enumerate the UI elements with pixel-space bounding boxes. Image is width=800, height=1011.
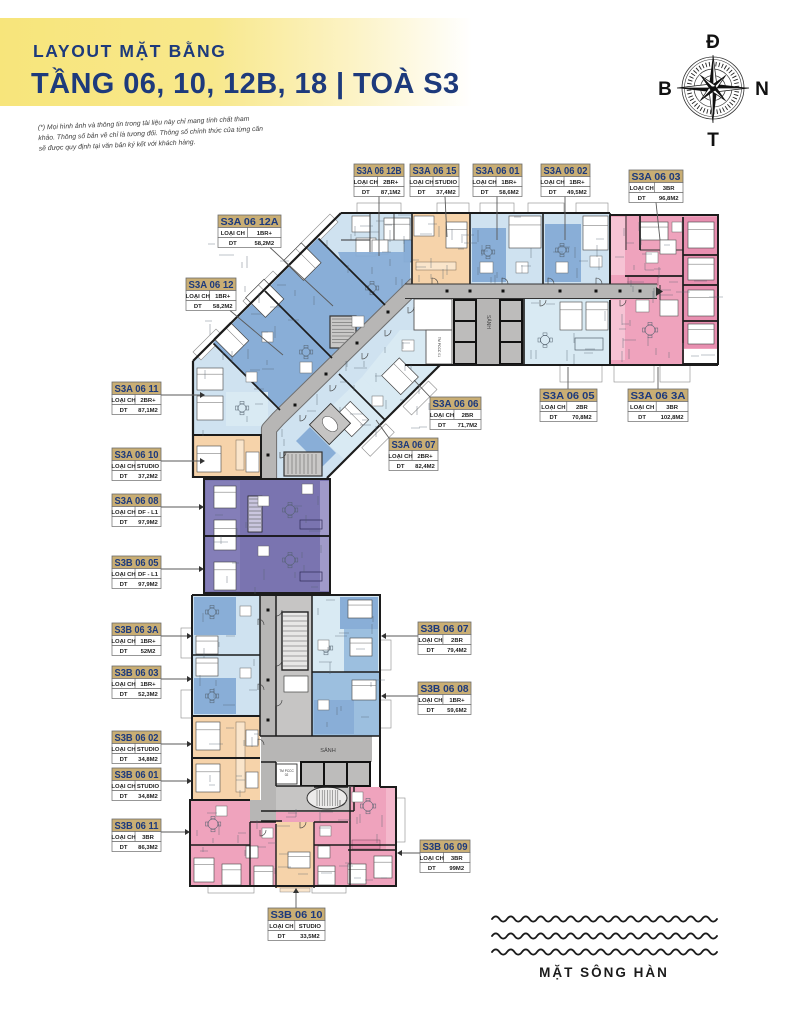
- svg-text:2BR+: 2BR+: [383, 180, 399, 186]
- svg-text:1BR+: 1BR+: [140, 682, 156, 688]
- svg-text:LOẠI CH: LOẠI CH: [409, 180, 433, 186]
- svg-text:DF - L1: DF - L1: [138, 510, 159, 516]
- svg-text:S3B 06 3A: S3B 06 3A: [115, 625, 160, 636]
- svg-text:1BR+: 1BR+: [501, 180, 517, 186]
- svg-text:S3B 06 07: S3B 06 07: [421, 624, 469, 635]
- svg-text:LOẠI CH: LOẠI CH: [111, 398, 135, 404]
- svg-text:3BR: 3BR: [451, 856, 464, 862]
- svg-text:33,5M2: 33,5M2: [300, 934, 320, 940]
- svg-text:STUDIO: STUDIO: [299, 924, 322, 930]
- svg-text:DT: DT: [194, 304, 202, 310]
- svg-text:S3B 06 03: S3B 06 03: [115, 668, 159, 679]
- svg-text:S3B 06 08: S3B 06 08: [421, 684, 469, 695]
- svg-text:34,8M2: 34,8M2: [138, 794, 158, 800]
- svg-text:LOẠI CH: LOẠI CH: [540, 180, 564, 186]
- svg-text:79,4M2: 79,4M2: [447, 648, 467, 654]
- svg-text:DT: DT: [438, 423, 446, 429]
- svg-text:DT: DT: [120, 649, 128, 655]
- svg-text:LOẠI CH: LOẠI CH: [472, 180, 496, 186]
- svg-text:S3A 06 12A: S3A 06 12A: [221, 217, 280, 228]
- svg-text:TM PCCC 01: TM PCCC 01: [437, 337, 441, 357]
- svg-text:102,8M2: 102,8M2: [661, 415, 685, 421]
- svg-text:2BR+: 2BR+: [140, 398, 156, 404]
- svg-text:LOẠI CH: LOẠI CH: [221, 231, 245, 237]
- svg-text:99M2: 99M2: [449, 866, 464, 872]
- svg-text:SẢNH: SẢNH: [320, 747, 336, 754]
- svg-text:B: B: [658, 79, 672, 100]
- svg-text:LOẠI CH: LOẠI CH: [388, 454, 412, 460]
- svg-text:3BR: 3BR: [666, 405, 679, 411]
- svg-text:3BR: 3BR: [663, 186, 676, 192]
- svg-text:DT: DT: [428, 866, 436, 872]
- svg-text:DT: DT: [397, 464, 405, 470]
- svg-text:S3B 06 10: S3B 06 10: [271, 910, 323, 921]
- svg-text:SẢNH: SẢNH: [485, 315, 492, 329]
- svg-text:Đ: Đ: [706, 32, 720, 53]
- svg-text:LOẠI CH: LOẠI CH: [630, 405, 654, 411]
- svg-text:S3B 06 02: S3B 06 02: [115, 733, 159, 744]
- svg-text:DT: DT: [120, 474, 128, 480]
- svg-text:MẶT SÔNG HÀN: MẶT SÔNG HÀN: [539, 965, 669, 980]
- svg-text:97,9M2: 97,9M2: [138, 582, 158, 588]
- svg-text:S3A 06 05: S3A 06 05: [543, 391, 595, 402]
- svg-text:LOẠI CH: LOẠI CH: [354, 180, 378, 186]
- svg-text:STUDIO: STUDIO: [137, 784, 160, 790]
- svg-text:96,8M2: 96,8M2: [659, 196, 679, 202]
- svg-text:N: N: [755, 79, 769, 100]
- svg-text:DT: DT: [120, 757, 128, 763]
- svg-text:DT: DT: [120, 582, 128, 588]
- svg-text:LOẠI CH: LOẠI CH: [111, 682, 135, 688]
- svg-text:DT: DT: [120, 408, 128, 414]
- svg-text:LOẠI CH: LOẠI CH: [111, 639, 135, 645]
- svg-text:1BR+: 1BR+: [215, 294, 231, 300]
- svg-text:S3A 06 10: S3A 06 10: [115, 450, 159, 461]
- svg-text:DT: DT: [120, 794, 128, 800]
- svg-text:S3A 06 07: S3A 06 07: [392, 440, 436, 451]
- svg-text:DT: DT: [362, 190, 370, 196]
- svg-text:LOẠI CH: LOẠI CH: [111, 835, 135, 841]
- svg-text:DT: DT: [481, 190, 489, 196]
- svg-text:DT: DT: [229, 241, 237, 247]
- svg-text:LOẠI CH: LOẠI CH: [111, 747, 135, 753]
- svg-text:LOẠI CH: LOẠI CH: [111, 784, 135, 790]
- svg-text:DT: DT: [638, 196, 646, 202]
- svg-text:STUDIO: STUDIO: [435, 180, 458, 186]
- svg-text:70,8M2: 70,8M2: [572, 415, 592, 421]
- svg-text:97,9M2: 97,9M2: [138, 520, 158, 526]
- svg-text:DT: DT: [549, 190, 557, 196]
- svg-text:S3A 06 02: S3A 06 02: [544, 166, 588, 177]
- svg-text:1BR+: 1BR+: [257, 231, 273, 237]
- svg-text:LOẠI CH: LOẠI CH: [111, 572, 135, 578]
- svg-text:52,3M2: 52,3M2: [138, 692, 158, 698]
- svg-text:S3B 06 11: S3B 06 11: [115, 821, 159, 832]
- svg-text:86,3M2: 86,3M2: [138, 845, 158, 851]
- svg-text:LOẠI CH: LOẠI CH: [541, 405, 565, 411]
- svg-text:T: T: [707, 130, 719, 151]
- svg-text:49,5M2: 49,5M2: [567, 190, 587, 196]
- svg-text:S3B 06 01: S3B 06 01: [115, 770, 159, 781]
- svg-text:58,2M2: 58,2M2: [254, 241, 274, 247]
- svg-text:DF - L1: DF - L1: [138, 572, 159, 578]
- svg-text:58,6M2: 58,6M2: [499, 190, 519, 196]
- svg-text:S3A 06 12B: S3A 06 12B: [357, 166, 402, 177]
- svg-text:02: 02: [285, 773, 289, 777]
- svg-text:1BR+: 1BR+: [449, 698, 465, 704]
- svg-text:58,2M2: 58,2M2: [213, 304, 233, 310]
- svg-text:LOẠI CH: LOẠI CH: [630, 186, 654, 192]
- svg-text:TẦNG 06, 10, 12B, 18 | TOÀ S3: TẦNG 06, 10, 12B, 18 | TOÀ S3: [31, 66, 460, 100]
- svg-text:DT: DT: [638, 415, 646, 421]
- svg-text:52M2: 52M2: [141, 649, 156, 655]
- svg-text:LOẠI CH: LOẠI CH: [430, 413, 454, 419]
- svg-text:LOẠI CH: LOẠI CH: [418, 698, 442, 704]
- svg-text:87,1M2: 87,1M2: [381, 190, 401, 196]
- svg-text:DT: DT: [120, 692, 128, 698]
- svg-text:3BR: 3BR: [142, 835, 155, 841]
- svg-text:DT: DT: [277, 934, 285, 940]
- svg-text:DT: DT: [549, 415, 557, 421]
- svg-text:S3A 06 3A: S3A 06 3A: [631, 391, 687, 402]
- svg-text:37,4M2: 37,4M2: [436, 190, 456, 196]
- svg-text:DT: DT: [427, 648, 435, 654]
- svg-text:LOẠI CH: LOẠI CH: [269, 924, 293, 930]
- svg-text:S3A 06 06: S3A 06 06: [433, 399, 479, 410]
- svg-text:S3A 06 08: S3A 06 08: [115, 496, 159, 507]
- svg-text:S3A 06 01: S3A 06 01: [476, 166, 520, 177]
- svg-text:37,2M2: 37,2M2: [138, 474, 158, 480]
- svg-text:82,4M2: 82,4M2: [415, 464, 435, 470]
- svg-text:LOẠI CH: LOẠI CH: [418, 638, 442, 644]
- svg-text:LOẠI CH: LOẠI CH: [111, 510, 135, 516]
- svg-text:71,7M2: 71,7M2: [458, 423, 478, 429]
- svg-text:LOẠI CH: LOẠI CH: [420, 856, 444, 862]
- svg-text:59,6M2: 59,6M2: [447, 708, 467, 714]
- svg-text:STUDIO: STUDIO: [137, 464, 160, 470]
- svg-text:DT: DT: [120, 520, 128, 526]
- svg-text:LAYOUT MẶT BẰNG: LAYOUT MẶT BẰNG: [33, 40, 227, 61]
- svg-text:S3B 06 09: S3B 06 09: [423, 842, 468, 853]
- svg-text:S3A 06 11: S3A 06 11: [115, 384, 159, 395]
- svg-text:DT: DT: [418, 190, 426, 196]
- svg-text:34,8M2: 34,8M2: [138, 757, 158, 763]
- svg-text:1BR+: 1BR+: [569, 180, 585, 186]
- svg-text:2BR+: 2BR+: [417, 454, 433, 460]
- svg-text:S3A 06 12: S3A 06 12: [189, 280, 234, 291]
- svg-text:2BR: 2BR: [576, 405, 589, 411]
- svg-text:DT: DT: [427, 708, 435, 714]
- svg-text:STUDIO: STUDIO: [137, 747, 160, 753]
- svg-text:2BR: 2BR: [451, 638, 464, 644]
- svg-text:DT: DT: [120, 845, 128, 851]
- svg-text:LOẠI CH: LOẠI CH: [111, 464, 135, 470]
- svg-text:S3B 06 05: S3B 06 05: [115, 558, 159, 569]
- svg-text:S3A 06 03: S3A 06 03: [632, 172, 681, 183]
- svg-text:87,1M2: 87,1M2: [138, 408, 158, 414]
- svg-text:2BR: 2BR: [462, 413, 475, 419]
- svg-text:S3A 06 15: S3A 06 15: [413, 166, 457, 177]
- svg-text:1BR+: 1BR+: [140, 639, 156, 645]
- svg-text:LOẠI CH: LOẠI CH: [186, 294, 210, 300]
